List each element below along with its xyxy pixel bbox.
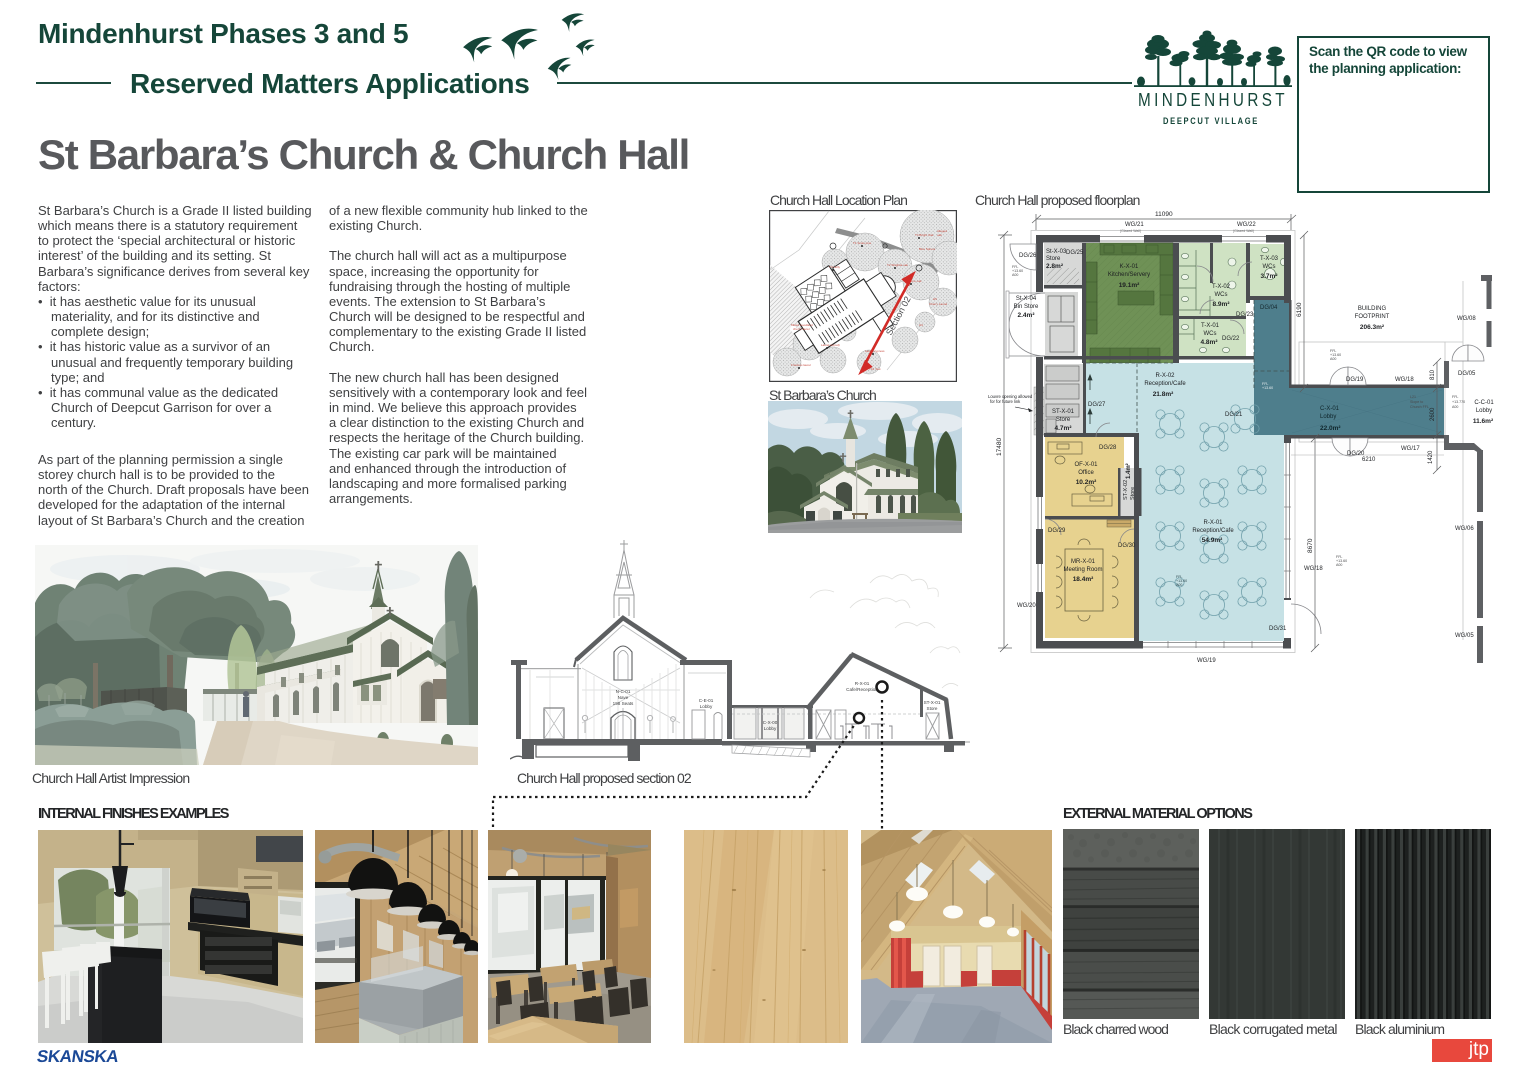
svg-text:A00: A00	[1176, 583, 1182, 587]
svg-text:FFL: FFL	[1452, 395, 1458, 399]
svg-text:DG/28: DG/28	[1099, 445, 1117, 451]
svg-text:DG/26: DG/26	[1019, 253, 1037, 259]
svg-text:Store: Store	[1056, 417, 1071, 423]
svg-text:11090: 11090	[1155, 211, 1173, 218]
svg-text:1.4m²: 1.4m²	[1125, 463, 1132, 479]
svg-text:206.3m²: 206.3m²	[1360, 324, 1385, 331]
svg-text:R-X-01: R-X-01	[855, 681, 870, 686]
svg-text:Cafe/Reception: Cafe/Reception	[846, 687, 878, 692]
svg-text:8.9m²: 8.9m²	[1213, 301, 1231, 308]
svg-text:A00: A00	[1452, 405, 1458, 409]
svg-text:3.7m²: 3.7m²	[1261, 273, 1279, 280]
svg-text:WG/05: WG/05	[1455, 633, 1474, 639]
svg-text:Laurel cypress: Laurel cypress	[865, 349, 885, 353]
svg-text:T2 Wrightia oak: T2 Wrightia oak	[887, 263, 908, 267]
svg-text:T-X-02: T-X-02	[1212, 284, 1231, 290]
svg-text:MINDENHURST: MINDENHURST	[1138, 90, 1288, 110]
svg-text:T-X-01: T-X-01	[1201, 323, 1220, 329]
svg-text:WG/20: WG/20	[1017, 603, 1036, 609]
svg-text:8670: 8670	[1307, 538, 1314, 553]
svg-text:Store: Store	[1130, 487, 1136, 500]
svg-text:DG/23: DG/23	[1236, 312, 1254, 318]
svg-text:18.4m²: 18.4m²	[1073, 576, 1094, 583]
svg-text:T1 Scots pine: T1 Scots pine	[853, 241, 872, 245]
svg-text:C-X-01: C-X-01	[1320, 406, 1340, 412]
svg-text:22.0m²: 22.0m²	[1320, 425, 1341, 432]
svg-text:A00: A00	[1330, 357, 1336, 361]
svg-text:DG/22: DG/22	[1222, 336, 1240, 342]
svg-text:WCs: WCs	[1215, 292, 1228, 298]
svg-text:2.8m²: 2.8m²	[1046, 263, 1064, 270]
svg-text:WG/18: WG/18	[1395, 377, 1414, 383]
svg-text:2.4m²: 2.4m²	[1018, 312, 1036, 319]
svg-text:OF-X-01: OF-X-01	[1074, 462, 1098, 468]
svg-text:6210: 6210	[1362, 457, 1376, 463]
svg-text:T-X-03: T-X-03	[1260, 256, 1279, 262]
svg-text:ST-X-01: ST-X-01	[1052, 409, 1075, 415]
svg-text:DG/31: DG/31	[1269, 626, 1287, 632]
svg-text:A00: A00	[1012, 273, 1018, 277]
svg-text:DEEPCUT VILLAGE: DEEPCUT VILLAGE	[1163, 116, 1259, 126]
svg-text:Office: Office	[1078, 470, 1094, 476]
svg-text:6190: 6190	[1296, 302, 1303, 317]
svg-text:DG/19: DG/19	[1346, 377, 1364, 383]
svg-text:Reception/Cafe: Reception/Cafe	[1144, 381, 1186, 387]
svg-text:ST-X-01: ST-X-01	[924, 700, 941, 705]
svg-text:Slope to: Slope to	[1410, 400, 1423, 404]
svg-text:(Glazed Wall): (Glazed Wall)	[1233, 229, 1254, 233]
svg-text:C-C-01: C-C-01	[1474, 400, 1494, 406]
svg-text:WG/17: WG/17	[1401, 446, 1420, 452]
svg-text:Church FFL: Church FFL	[1410, 405, 1429, 409]
svg-text:MR-X-01: MR-X-01	[1071, 559, 1096, 565]
svg-text:H4: H4	[919, 323, 923, 327]
svg-text:1420: 1420	[1428, 450, 1434, 464]
svg-text:Store: Store	[1046, 256, 1061, 262]
svg-text:oak: oak	[937, 233, 942, 237]
svg-text:T3 Holly: T3 Holly	[829, 265, 841, 269]
svg-text:WG/21: WG/21	[1125, 222, 1144, 228]
svg-text:A00: A00	[1336, 563, 1342, 567]
svg-text:2600: 2600	[1430, 407, 1436, 421]
svg-text:+13.60: +13.60	[1262, 386, 1273, 390]
svg-text:DG/21: DG/21	[1225, 412, 1243, 418]
svg-text:Store: Store	[927, 706, 938, 711]
svg-text:for for future link: for for future link	[990, 399, 1021, 404]
svg-text:Kitchen/Servery: Kitchen/Servery	[1108, 272, 1150, 278]
svg-text:N-C-01: N-C-01	[616, 689, 631, 694]
svg-text:54.9m²: 54.9m²	[1202, 537, 1223, 544]
svg-text:Reception/Cafe: Reception/Cafe	[1192, 528, 1234, 534]
svg-text:WG/19: WG/19	[1197, 658, 1216, 664]
svg-text:DG/05: DG/05	[1458, 371, 1476, 377]
svg-text:+13.770: +13.770	[1452, 400, 1465, 404]
svg-text:ST-X-02: ST-X-02	[1123, 480, 1129, 500]
svg-text:17480: 17480	[996, 438, 1003, 456]
svg-text:DG/25: DG/25	[1066, 250, 1084, 256]
svg-text:10.2m²: 10.2m²	[1076, 479, 1097, 486]
svg-text:810: 810	[1430, 369, 1436, 380]
svg-text:21.8m²: 21.8m²	[1153, 391, 1174, 398]
svg-text:WG/18: WG/18	[1304, 566, 1323, 572]
svg-text:BUILDING: BUILDING	[1358, 306, 1387, 312]
svg-text:11.6m²: 11.6m²	[1473, 418, 1494, 425]
svg-text:DG/04: DG/04	[1260, 305, 1278, 311]
svg-text:R-X-02: R-X-02	[1155, 373, 1175, 379]
svg-text:DG/29: DG/29	[1048, 528, 1066, 534]
svg-text:WG/06: WG/06	[1455, 526, 1474, 532]
svg-text:4.7m²: 4.7m²	[1055, 425, 1073, 432]
svg-text:WCs: WCs	[1263, 264, 1276, 270]
svg-text:L21: L21	[1410, 395, 1416, 399]
svg-text:WG/22: WG/22	[1237, 222, 1256, 228]
svg-text:H5: H5	[933, 297, 937, 301]
svg-text:WCs: WCs	[1204, 331, 1217, 337]
svg-text:DG/30: DG/30	[1118, 543, 1136, 549]
svg-text:Lobby: Lobby	[1476, 408, 1492, 414]
svg-text:St-X-04: St-X-04	[1016, 296, 1037, 302]
svg-text:Bin Store: Bin Store	[1014, 304, 1039, 310]
svg-text:Meeting Room: Meeting Room	[1063, 567, 1102, 573]
svg-text:St-X-03: St-X-03	[1046, 249, 1067, 255]
svg-text:FOOTPRINT: FOOTPRINT	[1355, 314, 1390, 320]
svg-text:Cherry Laurel: Cherry Laurel	[929, 302, 948, 306]
svg-text:Laurel sp(red): Laurel sp(red)	[821, 343, 840, 347]
svg-text:4.8m²: 4.8m²	[1201, 339, 1219, 346]
svg-text:K-X-01: K-X-01	[1120, 264, 1139, 270]
svg-text:Fraxinus laurel: Fraxinus laurel	[791, 363, 811, 367]
svg-text:19.1m²: 19.1m²	[1119, 282, 1140, 289]
svg-text:DG/27: DG/27	[1088, 402, 1106, 408]
svg-text:WG/08: WG/08	[1457, 316, 1476, 322]
svg-text:T4 Bright Oak: T4 Bright Oak	[915, 233, 934, 237]
svg-text:Lobby: Lobby	[1320, 414, 1336, 420]
svg-text:cherry laurel: cherry laurel	[793, 327, 810, 331]
svg-text:R-X-01: R-X-01	[1203, 520, 1223, 526]
svg-text:Blue Spruce: Blue Spruce	[919, 247, 936, 251]
svg-text:(Glazed Wall): (Glazed Wall)	[1120, 229, 1141, 233]
